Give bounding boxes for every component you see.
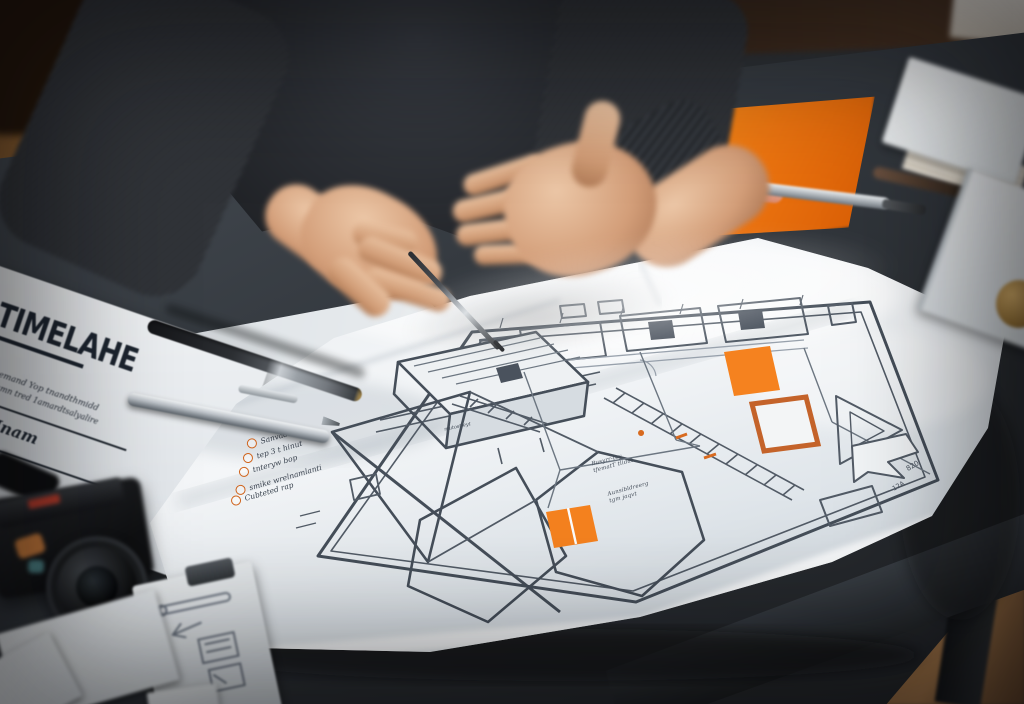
- photo-scene: TIMELAHE Wandal Brmatnnd rtwadatr Iteman…: [0, 0, 1024, 704]
- camera-teal-knob: [28, 560, 44, 573]
